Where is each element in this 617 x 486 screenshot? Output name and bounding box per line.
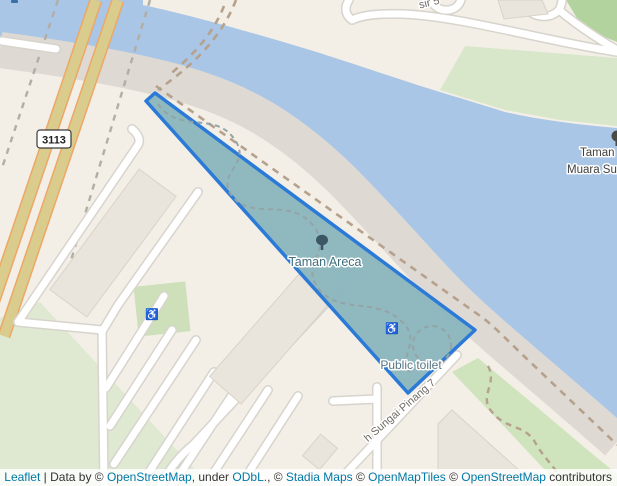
wheelchair-icon: ♿	[145, 308, 159, 321]
attribution-link-openstreetmap-2[interactable]: OpenStreetMap	[461, 470, 546, 484]
clipped-map-fragment	[11, 0, 18, 3]
attribution-text: , under	[192, 470, 233, 484]
road-shield-label: 3113	[42, 135, 66, 147]
attribution-link-openstreetmap[interactable]: OpenStreetMap	[107, 470, 192, 484]
public-toilet-label: Public toilet	[380, 358, 442, 372]
map-canvas[interactable]: ♿ ♿ 3113 Taman Areca Public toilet Taman…	[0, 0, 617, 486]
attribution-text: contributors	[546, 470, 612, 484]
attribution-text: ©	[353, 470, 369, 484]
road-shield-3113: 3113	[37, 130, 71, 148]
attribution-text: ©	[446, 470, 462, 484]
attribution-link-openmaptiles[interactable]: OpenMapTiles	[368, 470, 446, 484]
park-label: Taman Areca	[289, 255, 362, 269]
attribution-link-stadia-maps[interactable]: Stadia Maps	[286, 470, 353, 484]
map-tiles: ♿ ♿ 3113 Taman Areca Public toilet Taman…	[0, 0, 617, 486]
wheelchair-icon: ♿	[385, 322, 399, 335]
attribution-bar: Leaflet | Data by © OpenStreetMap, under…	[0, 469, 617, 486]
right-place-label-line1: Taman	[580, 147, 615, 159]
right-place-label-line2: Muara Sun	[567, 164, 617, 176]
attribution-link-odbl[interactable]: ODbL.	[232, 470, 267, 484]
attribution-text: , ©	[267, 470, 286, 484]
attribution-text: | Data by ©	[40, 470, 107, 484]
attribution-link-leaflet[interactable]: Leaflet	[4, 470, 40, 484]
